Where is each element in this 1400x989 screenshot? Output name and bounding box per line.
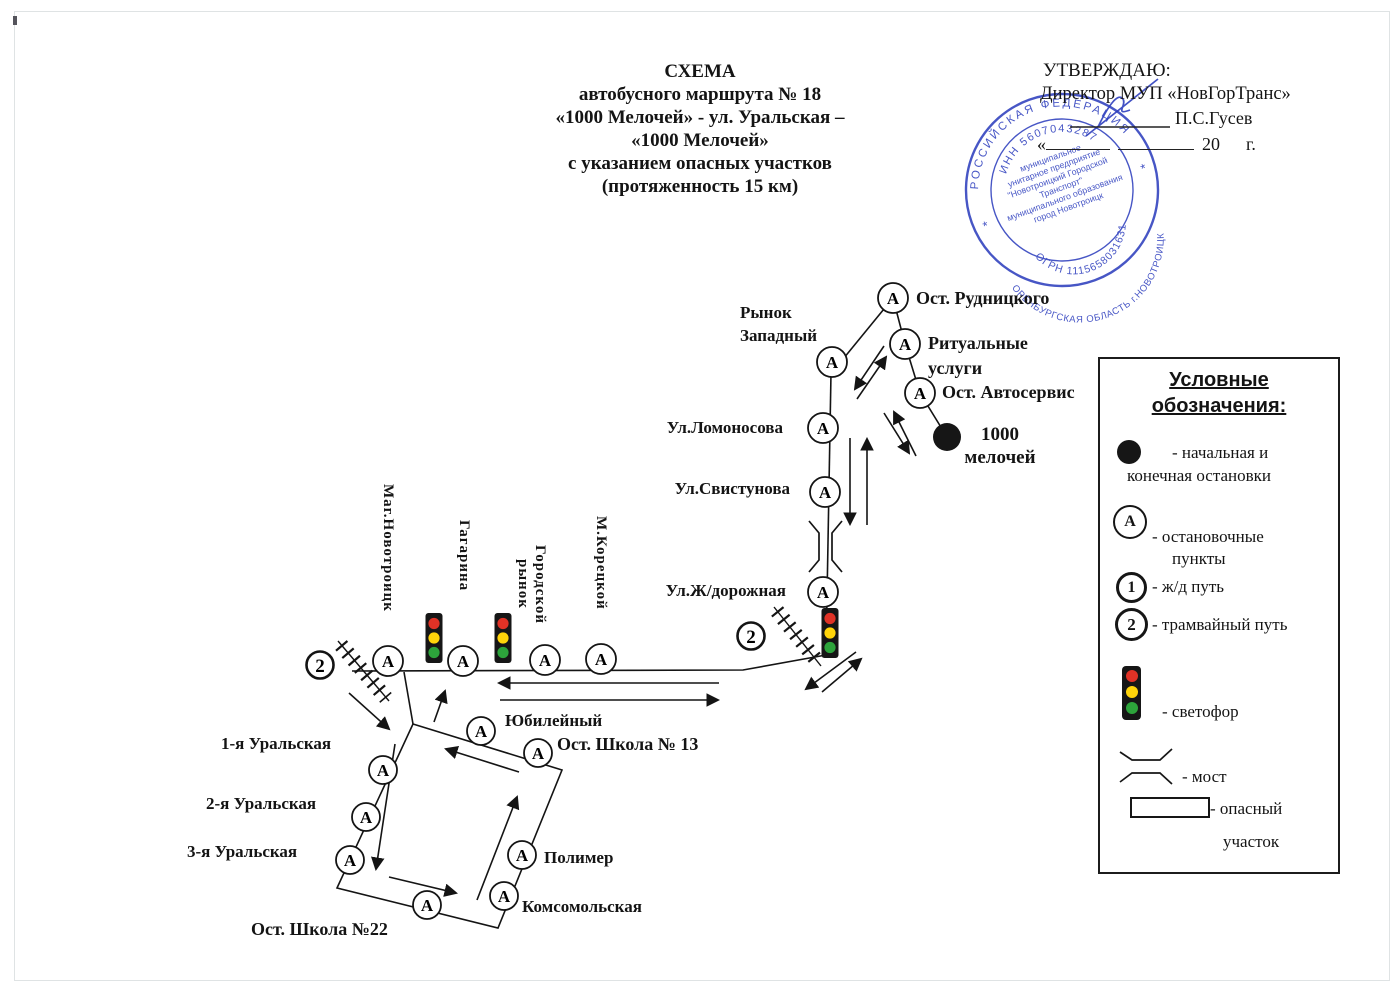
stop-letter: А bbox=[498, 887, 511, 906]
label-line: 1000 bbox=[958, 423, 1042, 446]
legend-rail-label: - ж/д путь bbox=[1152, 577, 1224, 597]
stop-letter: А bbox=[819, 483, 832, 502]
title-line: автобусного маршрута № 18 bbox=[500, 83, 900, 106]
approve-date-row: «20г. bbox=[1037, 133, 1256, 155]
label-line: Рынок bbox=[740, 301, 817, 324]
arrow-enter-loop bbox=[349, 693, 389, 729]
stop-letter: А bbox=[475, 722, 488, 741]
label-shkola22: Ост. Школа №22 bbox=[251, 918, 388, 941]
stamp-ogrn-text: ОГРН 1115658031631 bbox=[1031, 219, 1141, 292]
label-gagarina: Гагарина bbox=[455, 520, 472, 591]
tram-marker-right: 2 bbox=[738, 623, 765, 650]
label-shkola13: Ост. Школа № 13 bbox=[557, 733, 698, 756]
traffic-light-gagarina bbox=[426, 613, 443, 663]
stop-lomonosova: А bbox=[808, 413, 838, 443]
title-line: с указанием опасных участков bbox=[500, 152, 900, 175]
stop-ritualnye: А bbox=[890, 329, 920, 359]
arrow-loop-top-left bbox=[446, 749, 519, 772]
quote-open: « bbox=[1037, 134, 1046, 154]
stop-letter: А bbox=[887, 289, 900, 308]
label-gorodskoy-rynok: Городской рынок bbox=[514, 518, 548, 650]
tram-crossings bbox=[338, 607, 821, 701]
legend-stop-label-1: - остановочные bbox=[1152, 527, 1264, 547]
approve-name: П.С.Гусев bbox=[1175, 108, 1252, 129]
stop-letter: А bbox=[360, 808, 373, 827]
terminal-dot-1000-melochey bbox=[933, 423, 961, 451]
date-year-unit: г. bbox=[1246, 134, 1256, 154]
traffic-light-zhd bbox=[822, 608, 839, 658]
scheme-title: СХЕМА автобусного маршрута № 18 «1000 Ме… bbox=[500, 60, 900, 198]
label-line: Ритуальные bbox=[928, 331, 1028, 356]
stop-avtoservis: А bbox=[905, 378, 935, 408]
tram-marker-digit: 2 bbox=[746, 627, 756, 648]
stop-letter: А bbox=[826, 353, 839, 372]
arrow-exit-loop bbox=[434, 691, 445, 722]
label-line: услуги bbox=[928, 356, 1028, 381]
label-ural2: 2-я Уральская bbox=[206, 792, 316, 815]
stop-yubileyny: А bbox=[467, 717, 495, 745]
label-ost-rudnitskogo: Ост. Рудницкого bbox=[916, 287, 1049, 310]
road-loop-connector bbox=[404, 672, 413, 724]
legend-danger-label-1: - опасный bbox=[1210, 799, 1282, 819]
stop-letter: А bbox=[516, 846, 529, 865]
title-line: СХЕМА bbox=[500, 60, 900, 83]
stop-koretskoy: А bbox=[586, 644, 616, 674]
stop-polimer: А bbox=[508, 841, 536, 869]
date-year: 20 bbox=[1202, 134, 1220, 154]
stop-svistunova: А bbox=[810, 477, 840, 507]
label-line: Западный bbox=[740, 324, 817, 347]
title-line: (протяженность 15 км) bbox=[500, 175, 900, 198]
legend-bridge-icon bbox=[1118, 744, 1180, 788]
route-scheme-page: А А А А А А А А А А А А А А А А А А А 2 bbox=[0, 0, 1400, 989]
legend-danger-icon bbox=[1130, 797, 1210, 818]
legend-danger-label-2: участок bbox=[1223, 832, 1279, 852]
legend-stop-label-2: пункты bbox=[1172, 549, 1226, 569]
label-line: Городской bbox=[531, 518, 548, 650]
date-blank-day bbox=[1046, 133, 1110, 150]
svg-text:ОГРН 1115658031631: ОГРН 1115658031631 bbox=[1031, 219, 1141, 292]
traffic-light-gor-rynok bbox=[495, 613, 512, 663]
stop-letter: А bbox=[457, 652, 470, 671]
label-yubileyny: Юбилейный bbox=[505, 709, 602, 732]
label-svistunova: Ул.Свистунова bbox=[648, 477, 790, 500]
label-line: мелочей bbox=[958, 446, 1042, 469]
title-line: «1000 Мелочей» - ул. Уральская – bbox=[500, 106, 900, 129]
stop-letter: А bbox=[421, 896, 434, 915]
stop-mag-novotroitsk: А bbox=[373, 646, 403, 676]
stop-ural2: А bbox=[352, 803, 380, 831]
tram-marker-digit: 2 bbox=[315, 656, 325, 677]
title-line: «1000 Мелочей» bbox=[500, 129, 900, 152]
stop-rudnitskogo: А bbox=[878, 283, 908, 313]
label-komsomolskaya: Комсомольская bbox=[522, 895, 642, 918]
stop-letter: А bbox=[344, 851, 357, 870]
stop-letter: А bbox=[539, 651, 552, 670]
label-1000-melochey: 1000 мелочей bbox=[958, 423, 1042, 469]
legend-box: Условные обозначения: - начальная и коне… bbox=[1098, 357, 1340, 874]
stop-letter: А bbox=[532, 744, 545, 763]
stop-rynok-zapadny: А bbox=[817, 347, 847, 377]
stamp: РОССИЙСКАЯ ФЕДЕРАЦИЯ ИНН 5607043287 ОГРН… bbox=[939, 67, 1200, 353]
arrow-loop-bottom-right bbox=[389, 877, 456, 893]
label-polimer: Полимер bbox=[544, 846, 613, 869]
stop-ural3: А bbox=[336, 846, 364, 874]
legend-traffic-light-icon bbox=[1122, 666, 1141, 720]
stop-letter: А bbox=[817, 419, 830, 438]
tram-marker-left: 2 bbox=[307, 652, 334, 679]
stop-letter: А bbox=[595, 650, 608, 669]
stop-letter: А bbox=[817, 583, 830, 602]
stop-ural1: А bbox=[369, 756, 397, 784]
approve-director-line: Директор МУП «НовГорТранс» bbox=[1040, 84, 1291, 105]
label-line: рынок bbox=[514, 518, 531, 650]
legend-light-label: - светофор bbox=[1162, 702, 1239, 722]
stop-shkola13: А bbox=[524, 739, 552, 767]
stop-points: А А А А А А А А А А А А А А А А А А А bbox=[336, 283, 935, 919]
stamp-star-left: * bbox=[981, 218, 991, 234]
tram-crossing-line-right bbox=[774, 607, 821, 666]
stop-letter: А bbox=[899, 335, 912, 354]
label-zhd: Ул.Ж/дорожная bbox=[640, 579, 786, 602]
legend-terminal-label-1: - начальная и bbox=[1172, 443, 1268, 463]
legend-tram-icon: 2 bbox=[1115, 608, 1148, 641]
approve-heading: УТВЕРЖДАЮ: bbox=[1043, 60, 1171, 82]
legend-tram-label: - трамвайный путь bbox=[1152, 615, 1287, 635]
label-koretskoy: М.Корецкой bbox=[592, 516, 609, 610]
legend-bridge-label: - мост bbox=[1182, 767, 1227, 787]
arrow-diagonal-up bbox=[822, 659, 861, 692]
legend-title-line: обозначения: bbox=[1100, 393, 1338, 419]
stop-zhd: А bbox=[808, 577, 838, 607]
date-blank-month bbox=[1118, 133, 1194, 150]
legend-title-line: Условные bbox=[1100, 367, 1338, 393]
legend-terminal-label-2: конечная остановки bbox=[1127, 466, 1271, 486]
stop-gagarina: А bbox=[448, 646, 478, 676]
legend-stop-icon: А bbox=[1113, 505, 1147, 539]
label-ural3: 3-я Уральская bbox=[187, 840, 297, 863]
stamp-star-right: * bbox=[1139, 160, 1149, 176]
label-ural1: 1-я Уральская bbox=[221, 732, 331, 755]
stop-shkola22: А bbox=[413, 891, 441, 919]
bridge-icon bbox=[809, 521, 842, 572]
stop-letter: А bbox=[914, 384, 927, 403]
legend-rail-icon: 1 bbox=[1116, 572, 1147, 603]
legend-title: Условные обозначения: bbox=[1100, 367, 1338, 419]
label-ritualnye: Ритуальные услуги bbox=[928, 331, 1028, 381]
stop-letter: А bbox=[382, 652, 395, 671]
label-lomonosova: Ул.Ломоносова bbox=[638, 416, 783, 439]
stop-letter: А bbox=[377, 761, 390, 780]
stop-komsomolskaya: А bbox=[490, 882, 518, 910]
traffic-lights bbox=[426, 608, 839, 663]
label-ost-avtoservis: Ост. Автосервис bbox=[942, 381, 1075, 404]
label-mag-novotroitsk: Маг.Новотроицк bbox=[379, 484, 396, 612]
legend-terminal-dot-icon bbox=[1117, 440, 1141, 464]
label-rynok-zapadny: Рынок Западный bbox=[740, 301, 817, 347]
